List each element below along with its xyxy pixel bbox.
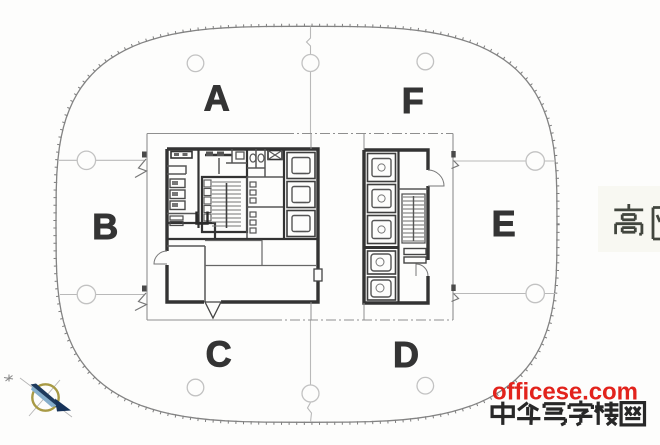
svg-text:B: B xyxy=(92,206,118,247)
svg-text:F: F xyxy=(402,80,424,121)
svg-text:C: C xyxy=(206,334,232,375)
svg-text:A: A xyxy=(204,78,230,119)
svg-text:D: D xyxy=(393,334,419,375)
svg-text:officese.com: officese.com xyxy=(492,379,638,406)
svg-text:E: E xyxy=(492,203,516,244)
